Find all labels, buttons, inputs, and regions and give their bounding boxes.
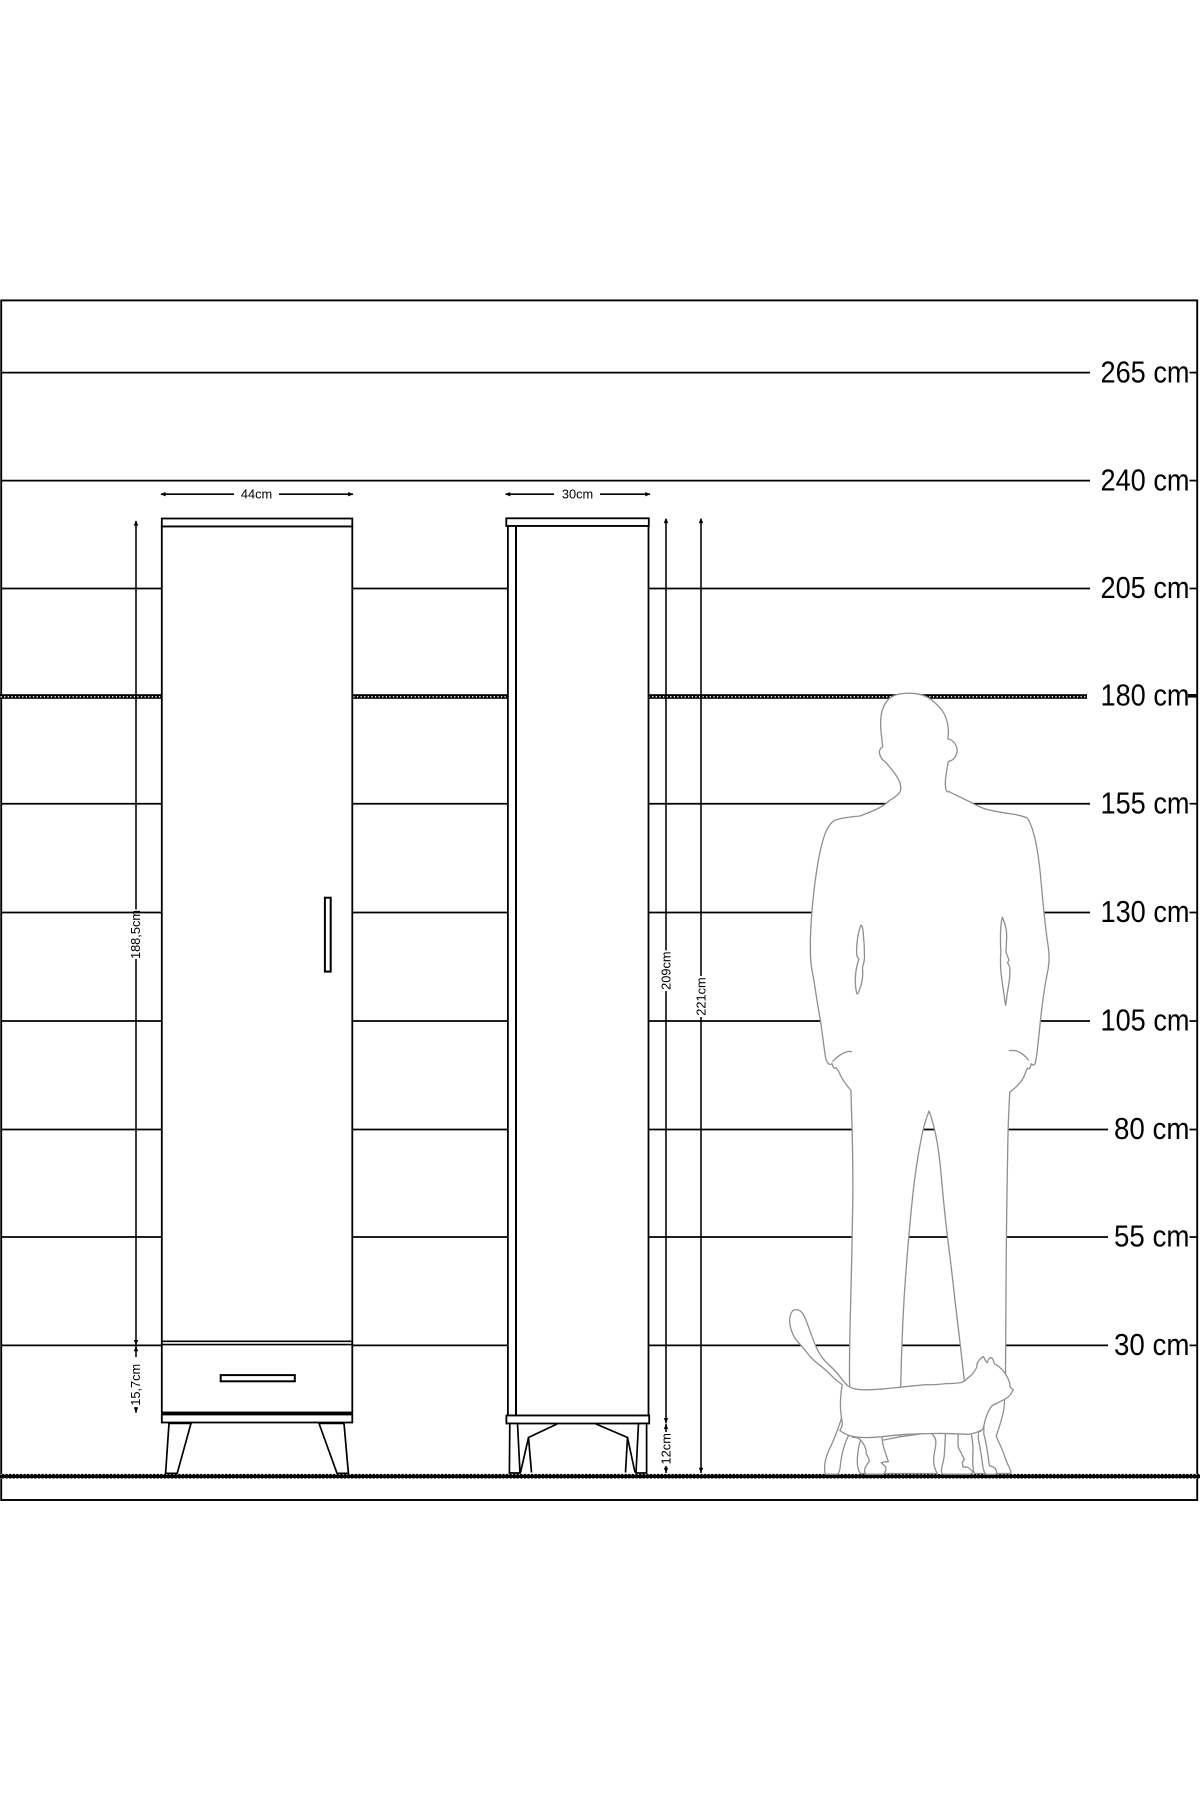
svg-text:30cm: 30cm — [562, 487, 593, 502]
svg-text:55 cm: 55 cm — [1114, 1219, 1190, 1254]
svg-text:44cm: 44cm — [241, 487, 272, 502]
svg-text:130 cm: 130 cm — [1101, 894, 1190, 929]
svg-text:105 cm: 105 cm — [1101, 1003, 1190, 1038]
svg-text:205 cm: 205 cm — [1101, 570, 1190, 605]
svg-text:30 cm: 30 cm — [1114, 1327, 1190, 1362]
svg-text:188,5cm: 188,5cm — [128, 910, 143, 959]
svg-text:265 cm: 265 cm — [1101, 354, 1190, 389]
svg-text:240 cm: 240 cm — [1101, 462, 1190, 497]
svg-text:155 cm: 155 cm — [1101, 785, 1190, 820]
svg-text:15,7cm: 15,7cm — [128, 1364, 143, 1406]
svg-text:180 cm: 180 cm — [1101, 678, 1190, 713]
svg-text:221cm: 221cm — [694, 977, 709, 1015]
svg-text:12cm: 12cm — [659, 1433, 674, 1464]
svg-text:209cm: 209cm — [659, 951, 674, 989]
svg-text:80 cm: 80 cm — [1114, 1111, 1190, 1146]
